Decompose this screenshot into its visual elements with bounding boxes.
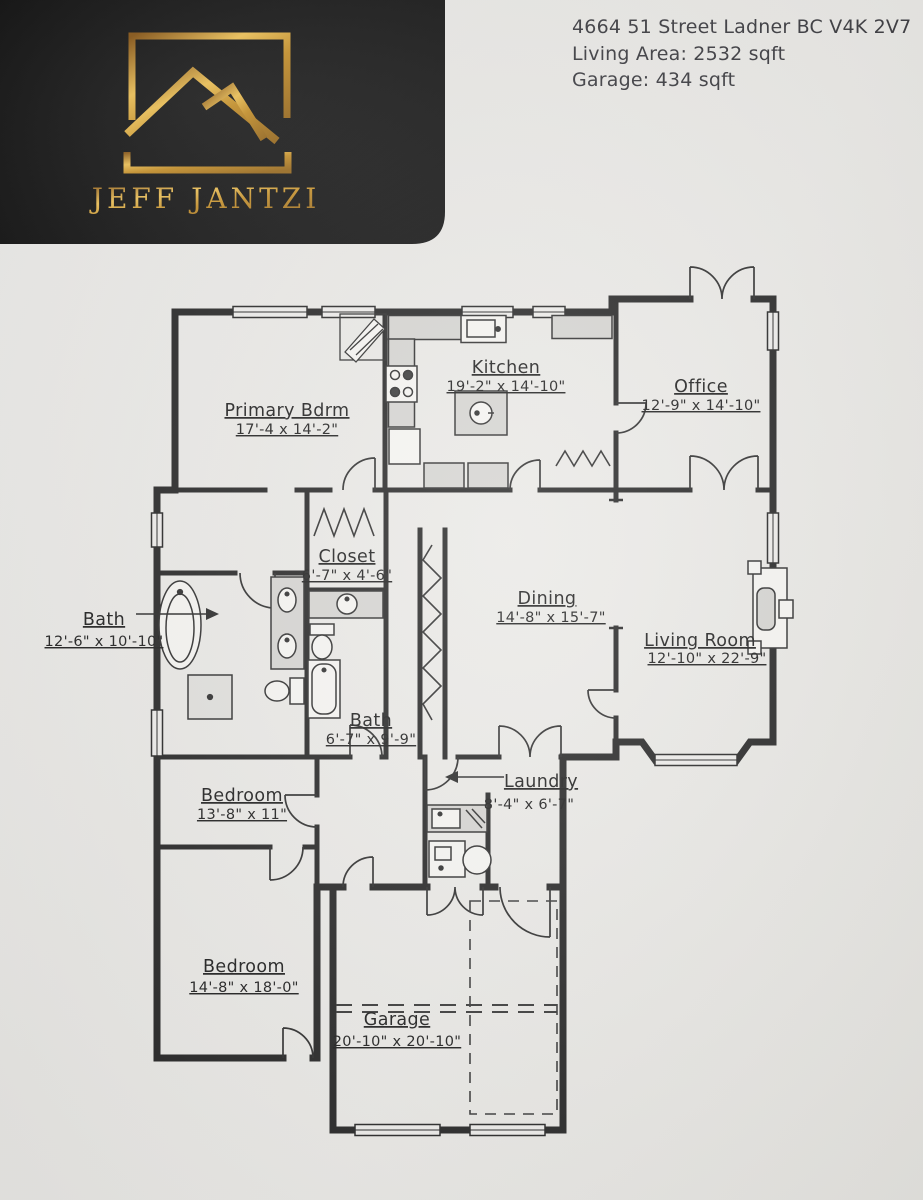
property-header: 4664 51 Street Ladner BC V4K 2V7 Living … xyxy=(572,14,912,94)
svg-text:12'-9" x 14'-10": 12'-9" x 14'-10" xyxy=(642,398,761,414)
svg-text:14'-8" x 18'-0": 14'-8" x 18'-0" xyxy=(189,980,298,996)
corner-cabinet xyxy=(340,314,386,362)
laundry-sink xyxy=(427,805,487,832)
svg-text:13'-8" x 11": 13'-8" x 11" xyxy=(197,807,287,823)
svg-text:19'-2" x 14'-10": 19'-2" x 14'-10" xyxy=(447,379,566,395)
room-label-office: Office 12'-9" x 14'-10" xyxy=(642,377,761,414)
kitchen-sink xyxy=(461,316,506,343)
living-area-text: Living Area: 2532 sqft xyxy=(572,41,912,68)
brand-logo: JEFF JANTZI xyxy=(0,0,445,244)
logo-graphic: JEFF JANTZI xyxy=(0,0,445,244)
room-label-closet: Closet 6'-7" x 4'-6" xyxy=(302,547,392,584)
garage-area-text: Garage: 434 sqft xyxy=(572,67,912,94)
scanned-floor-plan-page: Kitchen 19'-2" x 14'-10" Office 12'-9" x… xyxy=(0,0,923,1200)
room-label-garage: Garage 20'-10" x 20'-10" xyxy=(333,1010,461,1050)
island-sink xyxy=(455,391,507,435)
svg-text:Office: Office xyxy=(674,377,728,397)
hot-water-tank xyxy=(463,846,491,874)
svg-text:Primary Bdrm: Primary Bdrm xyxy=(224,401,349,421)
vanity-sink-bath2 xyxy=(309,591,383,618)
refrigerator xyxy=(389,429,420,464)
svg-text:Laundry: Laundry xyxy=(504,772,578,792)
pantry-zigzag xyxy=(556,451,610,466)
toilet-primary xyxy=(265,678,304,704)
shower-stall xyxy=(188,675,232,719)
furnace xyxy=(429,841,465,877)
toilet-bath2 xyxy=(310,624,334,659)
room-label-dining: Dining 14'-8" x 15'-7" xyxy=(496,589,605,626)
logo-brand-text: JEFF JANTZI xyxy=(89,182,321,215)
svg-text:Closet: Closet xyxy=(319,547,376,567)
closet-rod-zigzag xyxy=(314,509,374,536)
room-label-bedroom1: Bedroom 13'-8" x 11" xyxy=(197,786,287,823)
svg-text:Bedroom: Bedroom xyxy=(201,786,283,806)
svg-text:6'-7" x 9'-9": 6'-7" x 9'-9" xyxy=(326,732,416,748)
room-label-primary-bdrm: Primary Bdrm 17'-4 x 14'-2" xyxy=(224,401,349,438)
property-address: 4664 51 Street Ladner BC V4K 2V7 xyxy=(572,14,912,41)
svg-text:Kitchen: Kitchen xyxy=(472,358,541,378)
room-label-living-room: Living Room 12'-10" x 22'-9" xyxy=(644,631,766,667)
range-stove xyxy=(386,366,417,402)
garage-dashed-outline xyxy=(470,901,557,1114)
svg-text:14'-8" x 15'-7": 14'-8" x 15'-7" xyxy=(496,610,605,626)
room-label-kitchen: Kitchen 19'-2" x 14'-10" xyxy=(447,358,566,395)
double-vanity-sinks xyxy=(271,577,304,669)
svg-text:Bath: Bath xyxy=(83,610,125,630)
svg-text:6'-7" x 4'-6": 6'-7" x 4'-6" xyxy=(302,568,392,584)
svg-text:8'-4" x 6'-7": 8'-4" x 6'-7" xyxy=(484,797,574,813)
oval-bathtub xyxy=(159,581,201,669)
svg-text:17'-4 x 14'-2": 17'-4 x 14'-2" xyxy=(236,422,338,438)
bathtub-bath2 xyxy=(308,660,340,718)
cased-opening-jambs xyxy=(609,500,623,628)
room-label-bedroom2: Bedroom 14'-8" x 18'-0" xyxy=(189,957,298,996)
svg-text:Garage: Garage xyxy=(364,1010,430,1030)
svg-text:Living Room: Living Room xyxy=(644,631,756,651)
svg-text:Bedroom: Bedroom xyxy=(203,957,285,977)
linen-zigzag xyxy=(423,545,441,720)
svg-text:Dining: Dining xyxy=(518,589,577,609)
svg-text:12'-10" x 22'-9": 12'-10" x 22'-9" xyxy=(648,651,767,667)
svg-text:Bath: Bath xyxy=(350,711,392,731)
svg-text:12'-6" x 10'-10": 12'-6" x 10'-10" xyxy=(45,634,164,650)
svg-text:20'-10" x 20'-10": 20'-10" x 20'-10" xyxy=(333,1034,461,1050)
